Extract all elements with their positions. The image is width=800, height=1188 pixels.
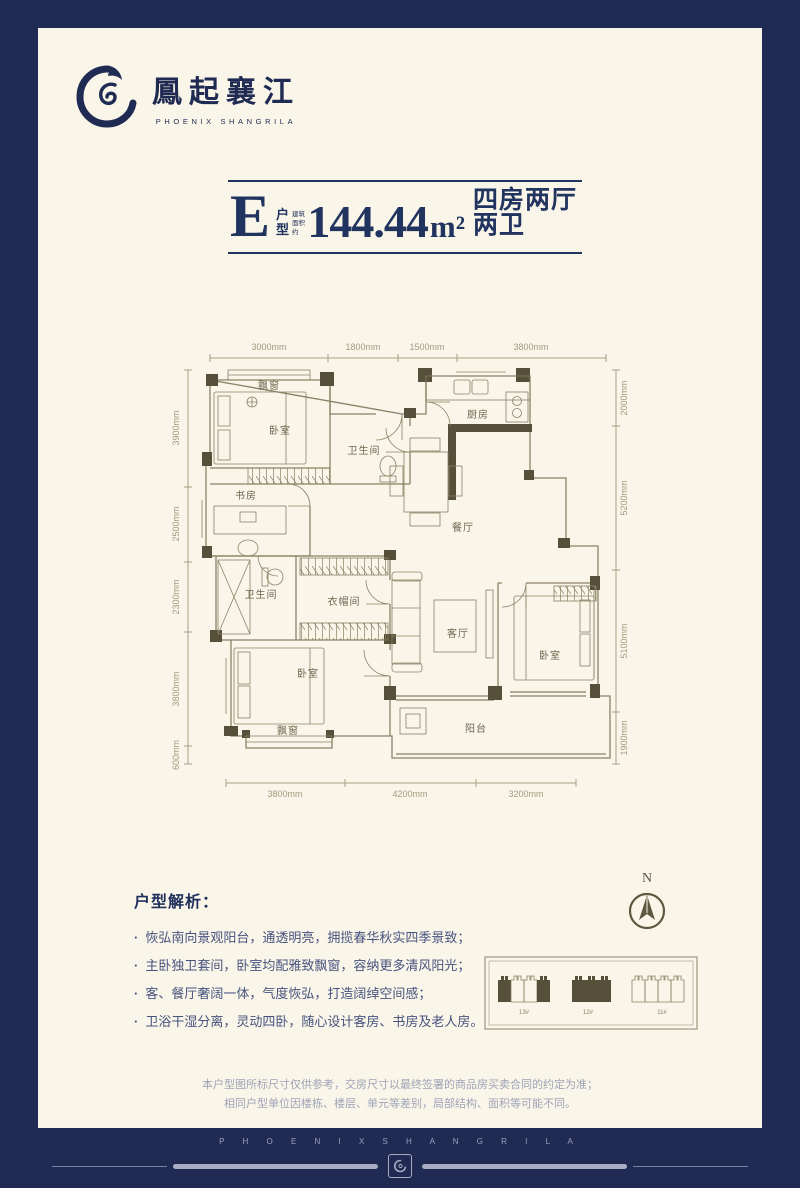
area-prefix-top: 建筑 bbox=[292, 210, 305, 219]
disclaimer-line-1: 本户型图所标尺寸仅供参考，交房尺寸以最终签署的商品房买卖合同的约定为准； bbox=[38, 1076, 762, 1095]
dim-right-1: 2000mm bbox=[619, 380, 629, 415]
room-labels: 飘窗 卧室 卫生间 厨房 书房 餐厅 卫生间 衣帽间 卧室 客厅 卧室 飘窗 阳… bbox=[235, 379, 561, 737]
footer-divider bbox=[52, 1154, 748, 1178]
building-label-12: 12# bbox=[583, 1010, 594, 1016]
footer-brand-text: P H O E N I X S H A N G R I L A bbox=[0, 1128, 800, 1146]
room-balcony: 阳台 bbox=[465, 722, 487, 735]
walls-layer bbox=[206, 376, 610, 758]
room-living: 客厅 bbox=[447, 627, 469, 640]
disclaimer: 本户型图所标尺寸仅供参考，交房尺寸以最终签署的商品房买卖合同的约定为准； 相同户… bbox=[38, 1076, 762, 1114]
poster-frame: 鳳起襄江 PHOENIX SHANGRILA E 户 型 建筑 面积约 144.… bbox=[0, 0, 800, 1188]
wardrobes-layer bbox=[248, 468, 596, 640]
dim-left-5: 600mm bbox=[171, 740, 181, 770]
phoenix-swirl-icon bbox=[74, 64, 138, 128]
footer-emblem-icon bbox=[388, 1154, 412, 1178]
room-bedroom-master: 卧室 bbox=[297, 667, 319, 680]
compass-icon: N bbox=[624, 864, 670, 946]
unit-type-word-bottom: 型 bbox=[276, 222, 289, 238]
area-prefix-bottom: 面积约 bbox=[292, 219, 305, 237]
analysis-bullet: 恢弘南向景观阳台，通透明亮，拥揽春华秋实四季景致； bbox=[134, 924, 554, 952]
brand-name-cn: 鳳起襄江 bbox=[152, 67, 300, 111]
dim-bottom-2: 4200mm bbox=[392, 789, 427, 799]
building-12 bbox=[572, 976, 611, 1002]
windows-layer bbox=[202, 370, 594, 748]
brand-text: 鳳起襄江 PHOENIX SHANGRILA bbox=[152, 67, 300, 126]
room-bedroom-top: 卧室 bbox=[269, 424, 291, 437]
dim-top-1: 3000mm bbox=[251, 342, 286, 352]
building-label-13: 13# bbox=[519, 1010, 530, 1016]
dim-right-4: 1900mm bbox=[619, 720, 629, 755]
unit-type-word: 户 型 bbox=[276, 207, 289, 238]
dim-top-2: 1800mm bbox=[345, 342, 380, 352]
structural-columns bbox=[202, 368, 600, 738]
dim-top-4: 3800mm bbox=[513, 342, 548, 352]
divider-segment-right bbox=[422, 1164, 627, 1169]
divider-line-right bbox=[633, 1166, 748, 1167]
compass-north-label: N bbox=[642, 871, 652, 886]
divider-segment-left bbox=[173, 1164, 378, 1169]
footer-band: P H O E N I X S H A N G R I L A bbox=[0, 1128, 800, 1188]
dim-right-3: 5100mm bbox=[619, 623, 629, 658]
room-bathroom-mid: 卫生间 bbox=[245, 588, 278, 601]
dim-right-2: 5200mm bbox=[619, 480, 629, 515]
room-dining: 餐厅 bbox=[452, 521, 474, 534]
dim-bottom-3: 3200mm bbox=[508, 789, 543, 799]
keyplan: 13# 12# 11# bbox=[484, 956, 698, 1039]
room-study: 书房 bbox=[235, 489, 257, 502]
unit-type-word-top: 户 bbox=[276, 207, 289, 223]
layout-description: 四房两厅两卫 bbox=[473, 188, 580, 238]
dim-bottom-1: 3800mm bbox=[267, 789, 302, 799]
building-label-11: 11# bbox=[657, 1010, 667, 1016]
keyplan-drawing: 13# 12# 11# bbox=[484, 956, 698, 1034]
unit-type-letter: E bbox=[230, 191, 270, 242]
disclaimer-line-2: 相同户型单位因楼栋、楼层、单元等差别，局部结构、面积等可能不同。 bbox=[38, 1095, 762, 1114]
area-value: 144.44 bbox=[307, 204, 428, 241]
building-labels: 13# 12# 11# bbox=[519, 1010, 667, 1016]
area-prefix: 建筑 面积约 bbox=[292, 210, 305, 237]
floorplan: 3000mm 1800mm 1500mm 3800mm 3900mm 2500m… bbox=[158, 328, 648, 813]
room-bedroom-east: 卧室 bbox=[539, 649, 561, 662]
room-bathroom-top: 卫生间 bbox=[348, 444, 381, 457]
unit-title-block: E 户 型 建筑 面积约 144.44 m² 四房两厅两卫 bbox=[228, 180, 582, 254]
compass: N bbox=[624, 864, 670, 951]
room-bay-window-top: 飘窗 bbox=[258, 379, 280, 392]
divider-line-left bbox=[52, 1166, 167, 1167]
poster-canvas: 鳳起襄江 PHOENIX SHANGRILA E 户 型 建筑 面积约 144.… bbox=[38, 28, 762, 1128]
room-kitchen: 厨房 bbox=[467, 408, 489, 421]
room-cloakroom: 衣帽间 bbox=[328, 595, 361, 608]
building-11 bbox=[632, 976, 684, 1002]
dim-top-3: 1500mm bbox=[409, 342, 444, 352]
area-unit: m² bbox=[430, 215, 465, 240]
dim-left-4: 3800mm bbox=[171, 671, 181, 706]
dim-left-2: 2500mm bbox=[171, 506, 181, 541]
analysis-heading: 户型解析： bbox=[134, 888, 554, 912]
building-13 bbox=[498, 976, 550, 1002]
brand-name-en: PHOENIX SHANGRILA bbox=[156, 117, 296, 126]
room-bay-window-bottom: 飘窗 bbox=[277, 724, 299, 737]
dim-left-1: 3900mm bbox=[171, 410, 181, 445]
floorplan-drawing: 3000mm 1800mm 1500mm 3800mm 3900mm 2500m… bbox=[158, 328, 648, 808]
dim-left-3: 2300mm bbox=[171, 579, 181, 614]
brand-logo: 鳳起襄江 PHOENIX SHANGRILA bbox=[74, 64, 300, 128]
